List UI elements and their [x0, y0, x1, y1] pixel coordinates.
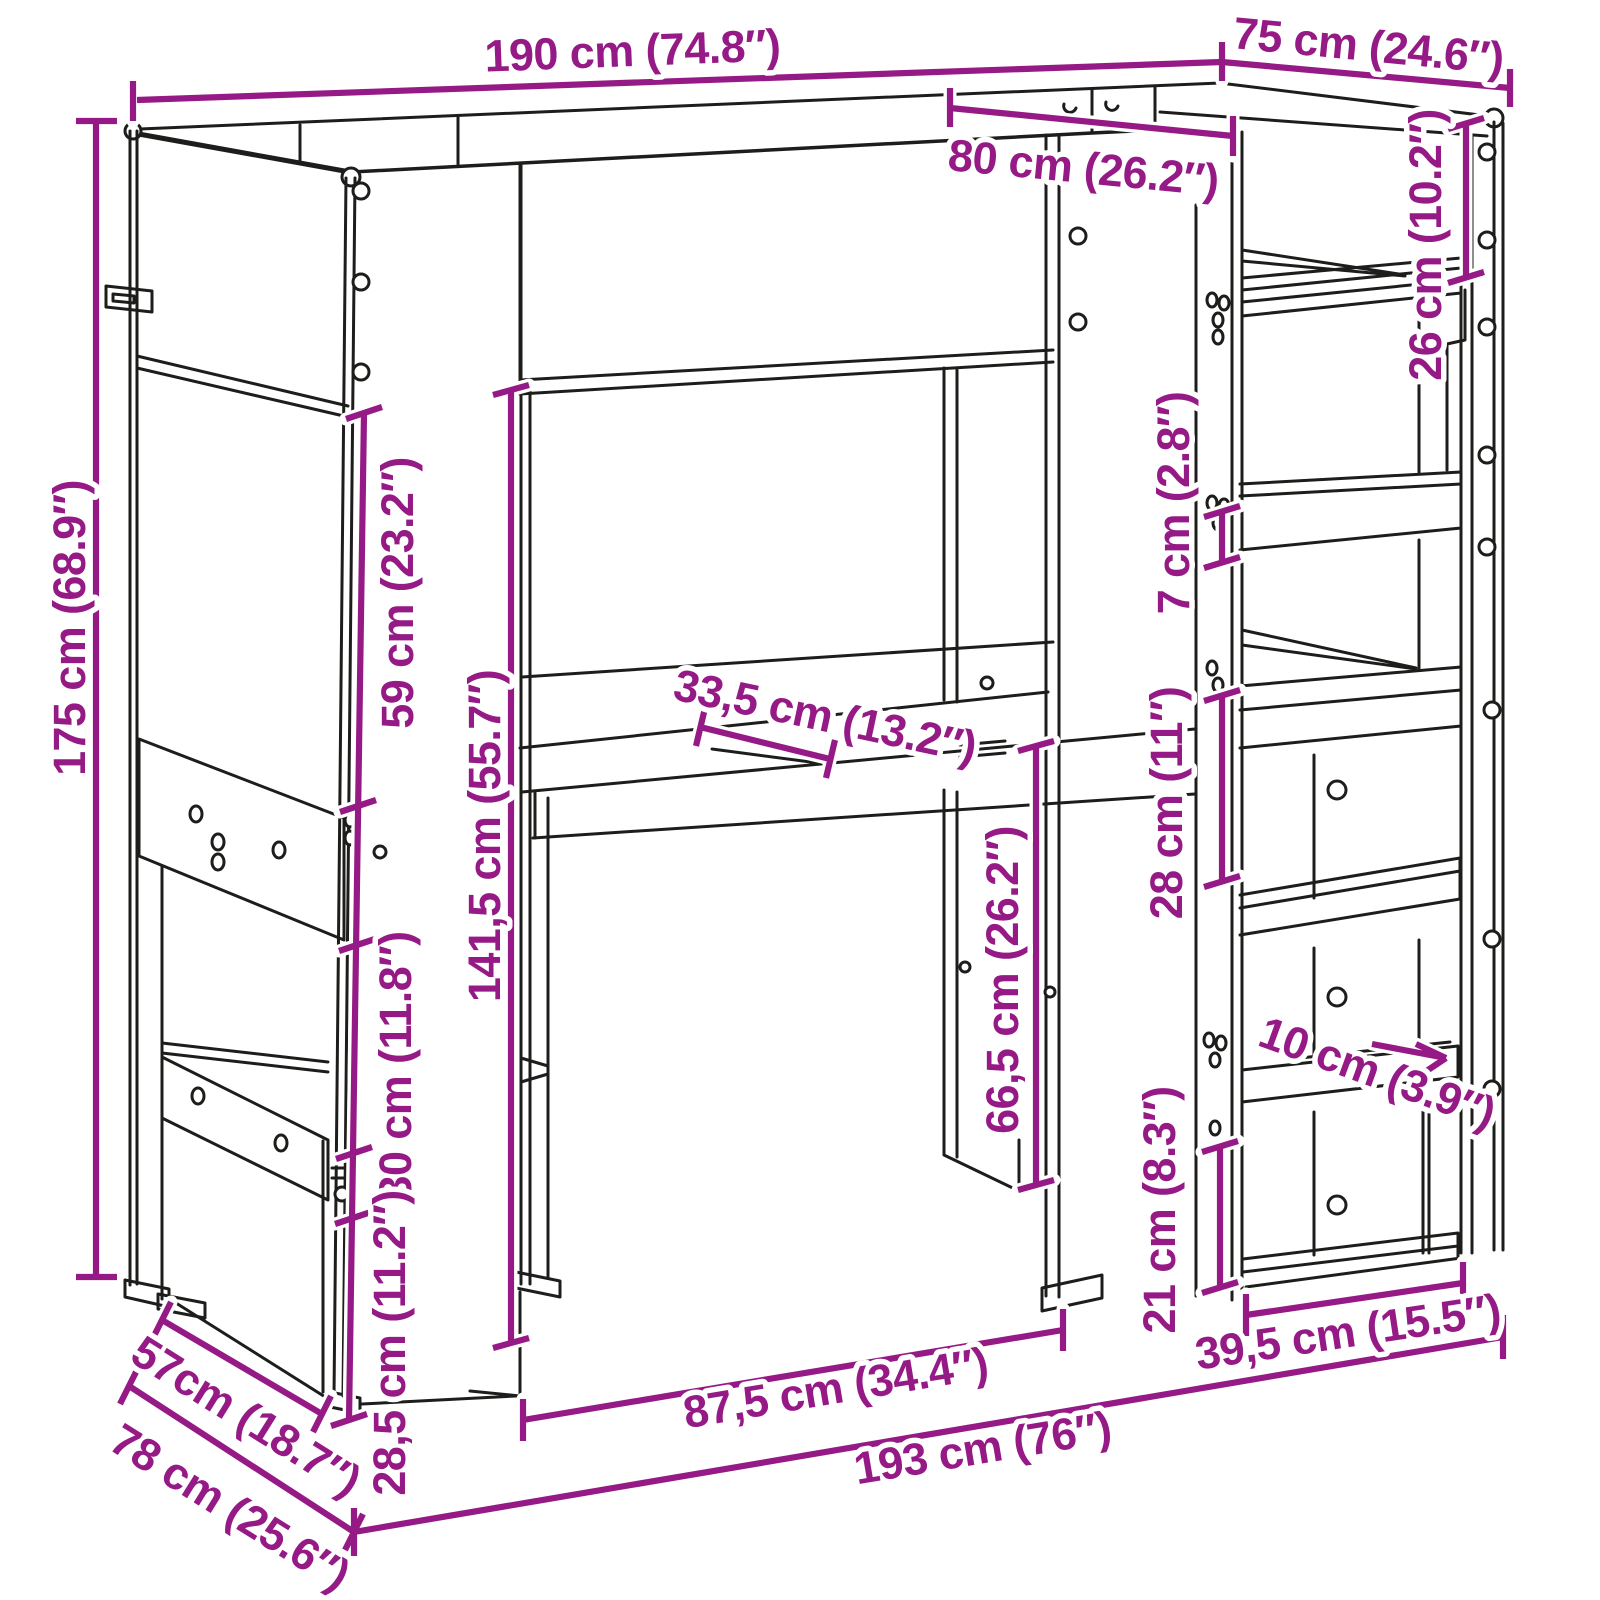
svg-text:7 cm (2.8″): 7 cm (2.8″): [1148, 392, 1199, 615]
svg-text:66,5 cm (26.2″): 66,5 cm (26.2″): [977, 826, 1028, 1134]
svg-text:28,5 cm (11.2″): 28,5 cm (11.2″): [364, 1190, 415, 1495]
svg-text:141,5 cm (55.7″): 141,5 cm (55.7″): [459, 670, 510, 1002]
svg-text:175 cm (68.9″): 175 cm (68.9″): [44, 480, 95, 776]
svg-text:26 cm (10.2″): 26 cm (10.2″): [1400, 109, 1451, 380]
svg-text:59 cm (23.2″): 59 cm (23.2″): [372, 457, 423, 728]
svg-text:28 cm (11″): 28 cm (11″): [1141, 687, 1192, 920]
svg-text:21 cm (8.3″): 21 cm (8.3″): [1134, 1087, 1185, 1334]
svg-text:30 cm (11.8″): 30 cm (11.8″): [370, 932, 421, 1201]
